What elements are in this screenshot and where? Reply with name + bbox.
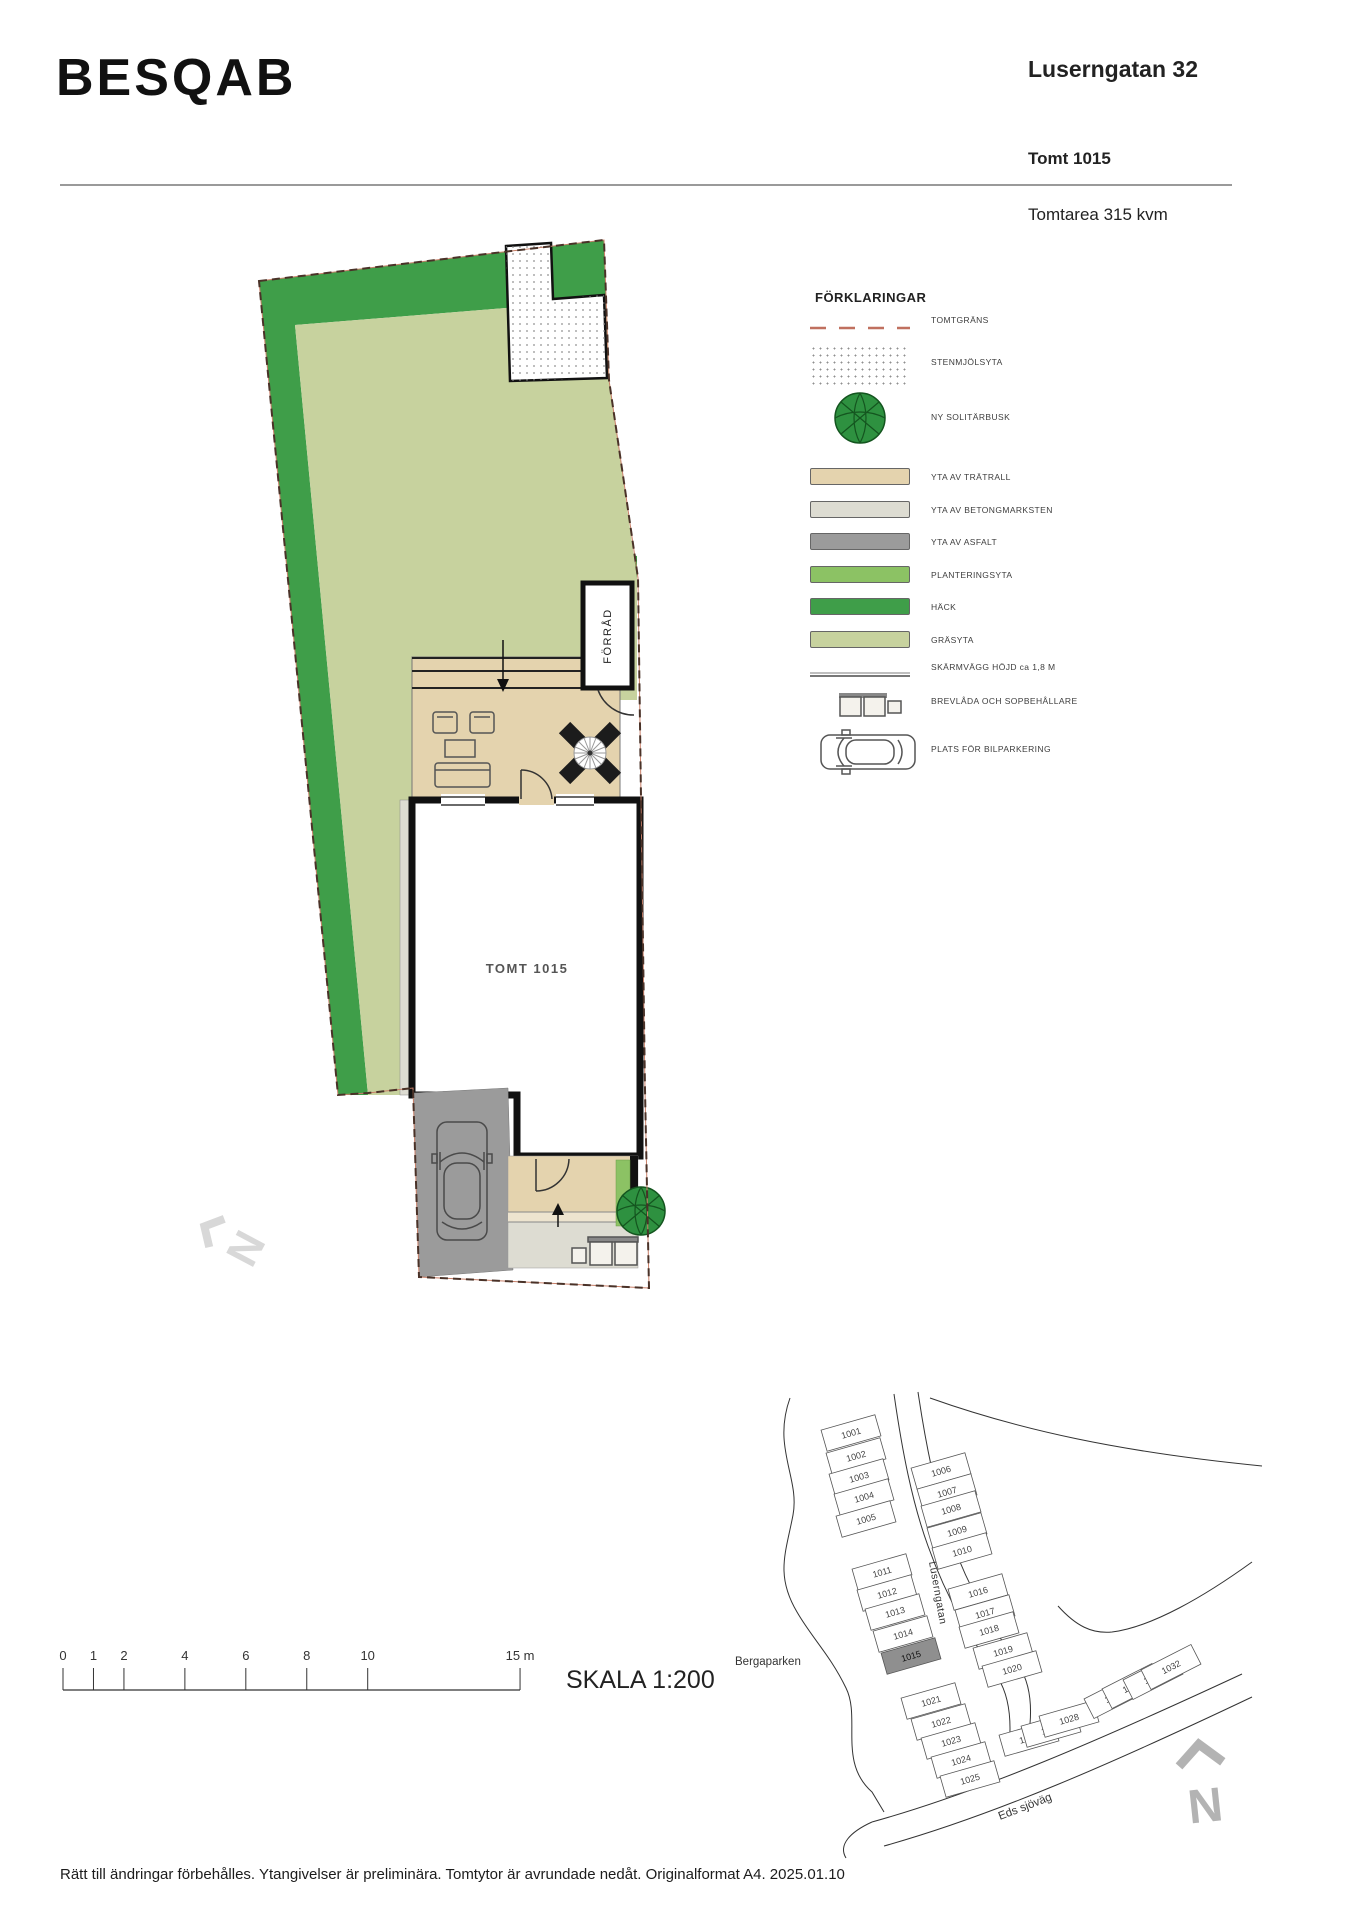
besqab-logo: BESQAB: [56, 48, 296, 108]
house-plot-label: TOMT 1015: [486, 961, 569, 976]
map-lots: 1001100210031004100510061007100810091010…: [821, 1415, 1201, 1798]
map-north-arrow: N: [1177, 1742, 1230, 1835]
plot-number: Tomt 1015: [1028, 149, 1111, 169]
site-plan: FÖRRÅD TOMT 1015: [140, 190, 700, 1350]
grasyta-label: GRÄSYTA: [931, 635, 974, 645]
footer-disclaimer: Rätt till ändringar förbehålles. Ytangiv…: [60, 1866, 845, 1883]
legend: FÖRKLARINGAR TOMTGRÄNSSTENMJÖLSYTANY SOL…: [810, 290, 1240, 810]
street-label-luserngatan: Luserngatan: [926, 1560, 949, 1625]
solitarbusk-symbol: [832, 390, 888, 451]
plan-north-arrow: N: [197, 1212, 276, 1274]
brevlada-label: BREVLÅDA OCH SOPBEHÅLLARE: [931, 696, 1078, 706]
parking-area: [413, 1088, 513, 1277]
bilparkering-label: PLATS FÖR BILPARKERING: [931, 744, 1051, 754]
stenmjolsyta-symbol: [810, 345, 906, 387]
scale-tick-label: 15 m: [506, 1648, 535, 1663]
road-top-right: [930, 1398, 1262, 1466]
scale-tick-label: 10: [360, 1648, 374, 1663]
address-title: Luserngatan 32: [1028, 56, 1198, 83]
betongmarksten-symbol: [810, 501, 910, 518]
street-label-eds: Eds sjöväg: [997, 1791, 1054, 1822]
park-label: Bergaparken: [735, 1656, 801, 1668]
plot-area-text: Tomtarea 315 kvm: [1028, 205, 1168, 225]
grasyta-symbol: [810, 631, 910, 648]
planteringsyta-symbol: [810, 566, 910, 583]
tomtgrans-symbol: [810, 319, 910, 337]
storage-label: FÖRRÅD: [601, 608, 614, 663]
header-rule: [60, 184, 1232, 186]
bush-symbol: [617, 1187, 665, 1235]
entry-court: [508, 1156, 665, 1268]
bilparkering-symbol: [818, 728, 918, 781]
skarmvagg-symbol: [810, 666, 910, 684]
planteringsyta-label: PLANTERINGSYTA: [931, 570, 1013, 580]
tomtgrans-label: TOMTGRÄNS: [931, 315, 989, 325]
stenmjolsyta-label: STENMJÖLSYTA: [931, 357, 1003, 367]
road-bottom-tail: [844, 1822, 872, 1858]
betongmarksten-label: YTA AV BETONGMARKSTEN: [931, 505, 1053, 515]
scale-tick-label: 6: [242, 1648, 249, 1663]
map-lot-1032: 1032: [1141, 1644, 1201, 1689]
svg-text:N: N: [1185, 1778, 1225, 1834]
tratrall-symbol: [810, 468, 910, 485]
brevlada-symbol: [838, 692, 908, 723]
scale-tick-label: 4: [181, 1648, 188, 1663]
scale-tick-label: 8: [303, 1648, 310, 1663]
asfalt-symbol: [810, 533, 910, 550]
tratrall-label: YTA AV TRÄTRALL: [931, 472, 1011, 482]
scale-tick-label: 1: [90, 1648, 97, 1663]
hack-symbol: [810, 598, 910, 615]
asfalt-label: YTA AV ASFALT: [931, 537, 997, 547]
location-map: 1001100210031004100510061007100810091010…: [600, 1380, 1300, 1880]
road-right-loop: [1058, 1562, 1252, 1632]
legend-title: FÖRKLARINGAR: [815, 290, 926, 305]
document-page: BESQAB Luserngatan 32 Tomt 1015 Tomtarea…: [0, 0, 1366, 1931]
hack-label: HÄCK: [931, 602, 956, 612]
svg-text:N: N: [217, 1223, 275, 1274]
skarmvagg-label: SKÄRMVÄGG HÖJD ca 1,8 M: [931, 662, 1055, 672]
solitarbusk-label: NY SOLITÄRBUSK: [931, 412, 1010, 422]
scale-tick-label: 2: [120, 1648, 127, 1663]
scale-tick-label: 0: [59, 1648, 66, 1663]
